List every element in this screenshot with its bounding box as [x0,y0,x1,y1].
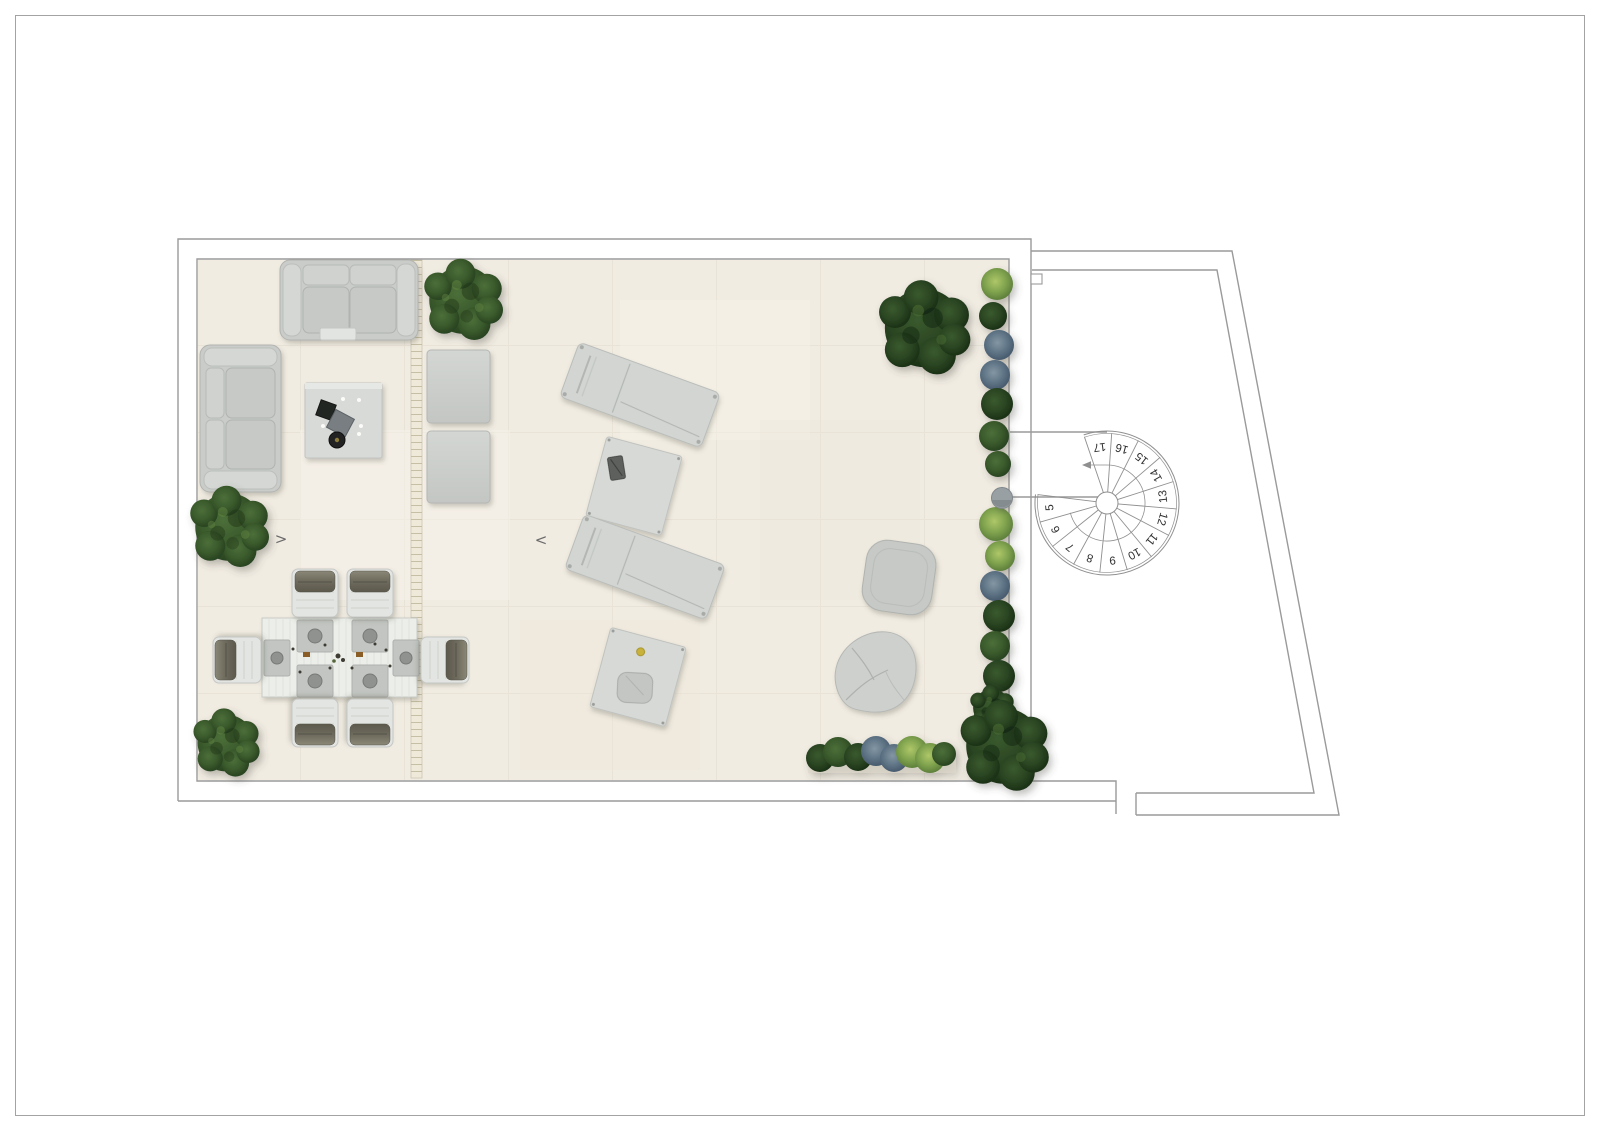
dining-chair-4 [347,699,393,747]
sofa-armrest [283,264,301,336]
chair-cushion [350,724,390,745]
floor-plan-drawing: 5 6 7 8 9 10 11 12 13 14 15 16 17 [0,0,1600,1131]
ottoman-1 [427,350,490,423]
sofa-seat-cushion [226,368,275,418]
sofa-back-cushion [206,368,224,418]
candle [341,397,345,401]
dining-chair-1 [292,569,338,617]
sofa-tray [320,328,356,340]
chair-cushion [295,571,335,592]
stair-step-number: 13 [1157,489,1170,503]
chair-cushion [295,724,335,745]
stair-step-number: 5 [1044,504,1056,511]
stair-center-column [1096,492,1118,514]
candle [359,424,363,428]
stair-step-number: 17 [1092,440,1106,454]
candle [357,432,361,436]
sofa-seat-cushion [303,287,349,333]
stair-step-number: 9 [1109,553,1117,566]
slope-arrow-left-icon: < [535,531,548,549]
sofa-back-cushion [303,265,349,285]
floor-plan-page: 5 6 7 8 9 10 11 12 13 14 15 16 17 [0,0,1600,1131]
sofa-seat-cushion [350,287,396,333]
dining-table [262,618,419,697]
ottoman-2 [427,431,490,503]
dining-chair-3 [292,699,338,747]
bag-item [607,455,625,480]
sofa-armrest [204,471,277,489]
sofa-back-cushion [206,420,224,469]
chair-cushion [350,571,390,592]
dining-chair-5 [213,637,261,683]
wall-pot [992,488,1013,509]
sofa-armrest [204,348,277,366]
wall-hook-detail [1031,274,1042,284]
two-seat-sofa [200,345,281,492]
sofa-back-cushion [350,265,396,285]
pouf [859,537,938,617]
sofa-armrest [397,264,415,336]
chair-cushion [446,640,467,680]
dining-chair-2 [347,569,393,617]
coffee-table [305,383,382,458]
slope-arrow-right-icon: > [275,530,288,548]
dining-chair-6 [421,637,469,683]
sofa-seat-cushion [226,420,275,469]
tray-item [335,438,339,442]
towel [617,672,654,704]
candle [357,398,361,402]
stair-landing [1010,432,1107,497]
three-seat-sofa [280,260,418,340]
candle [321,424,325,428]
chair-cushion [215,640,236,680]
